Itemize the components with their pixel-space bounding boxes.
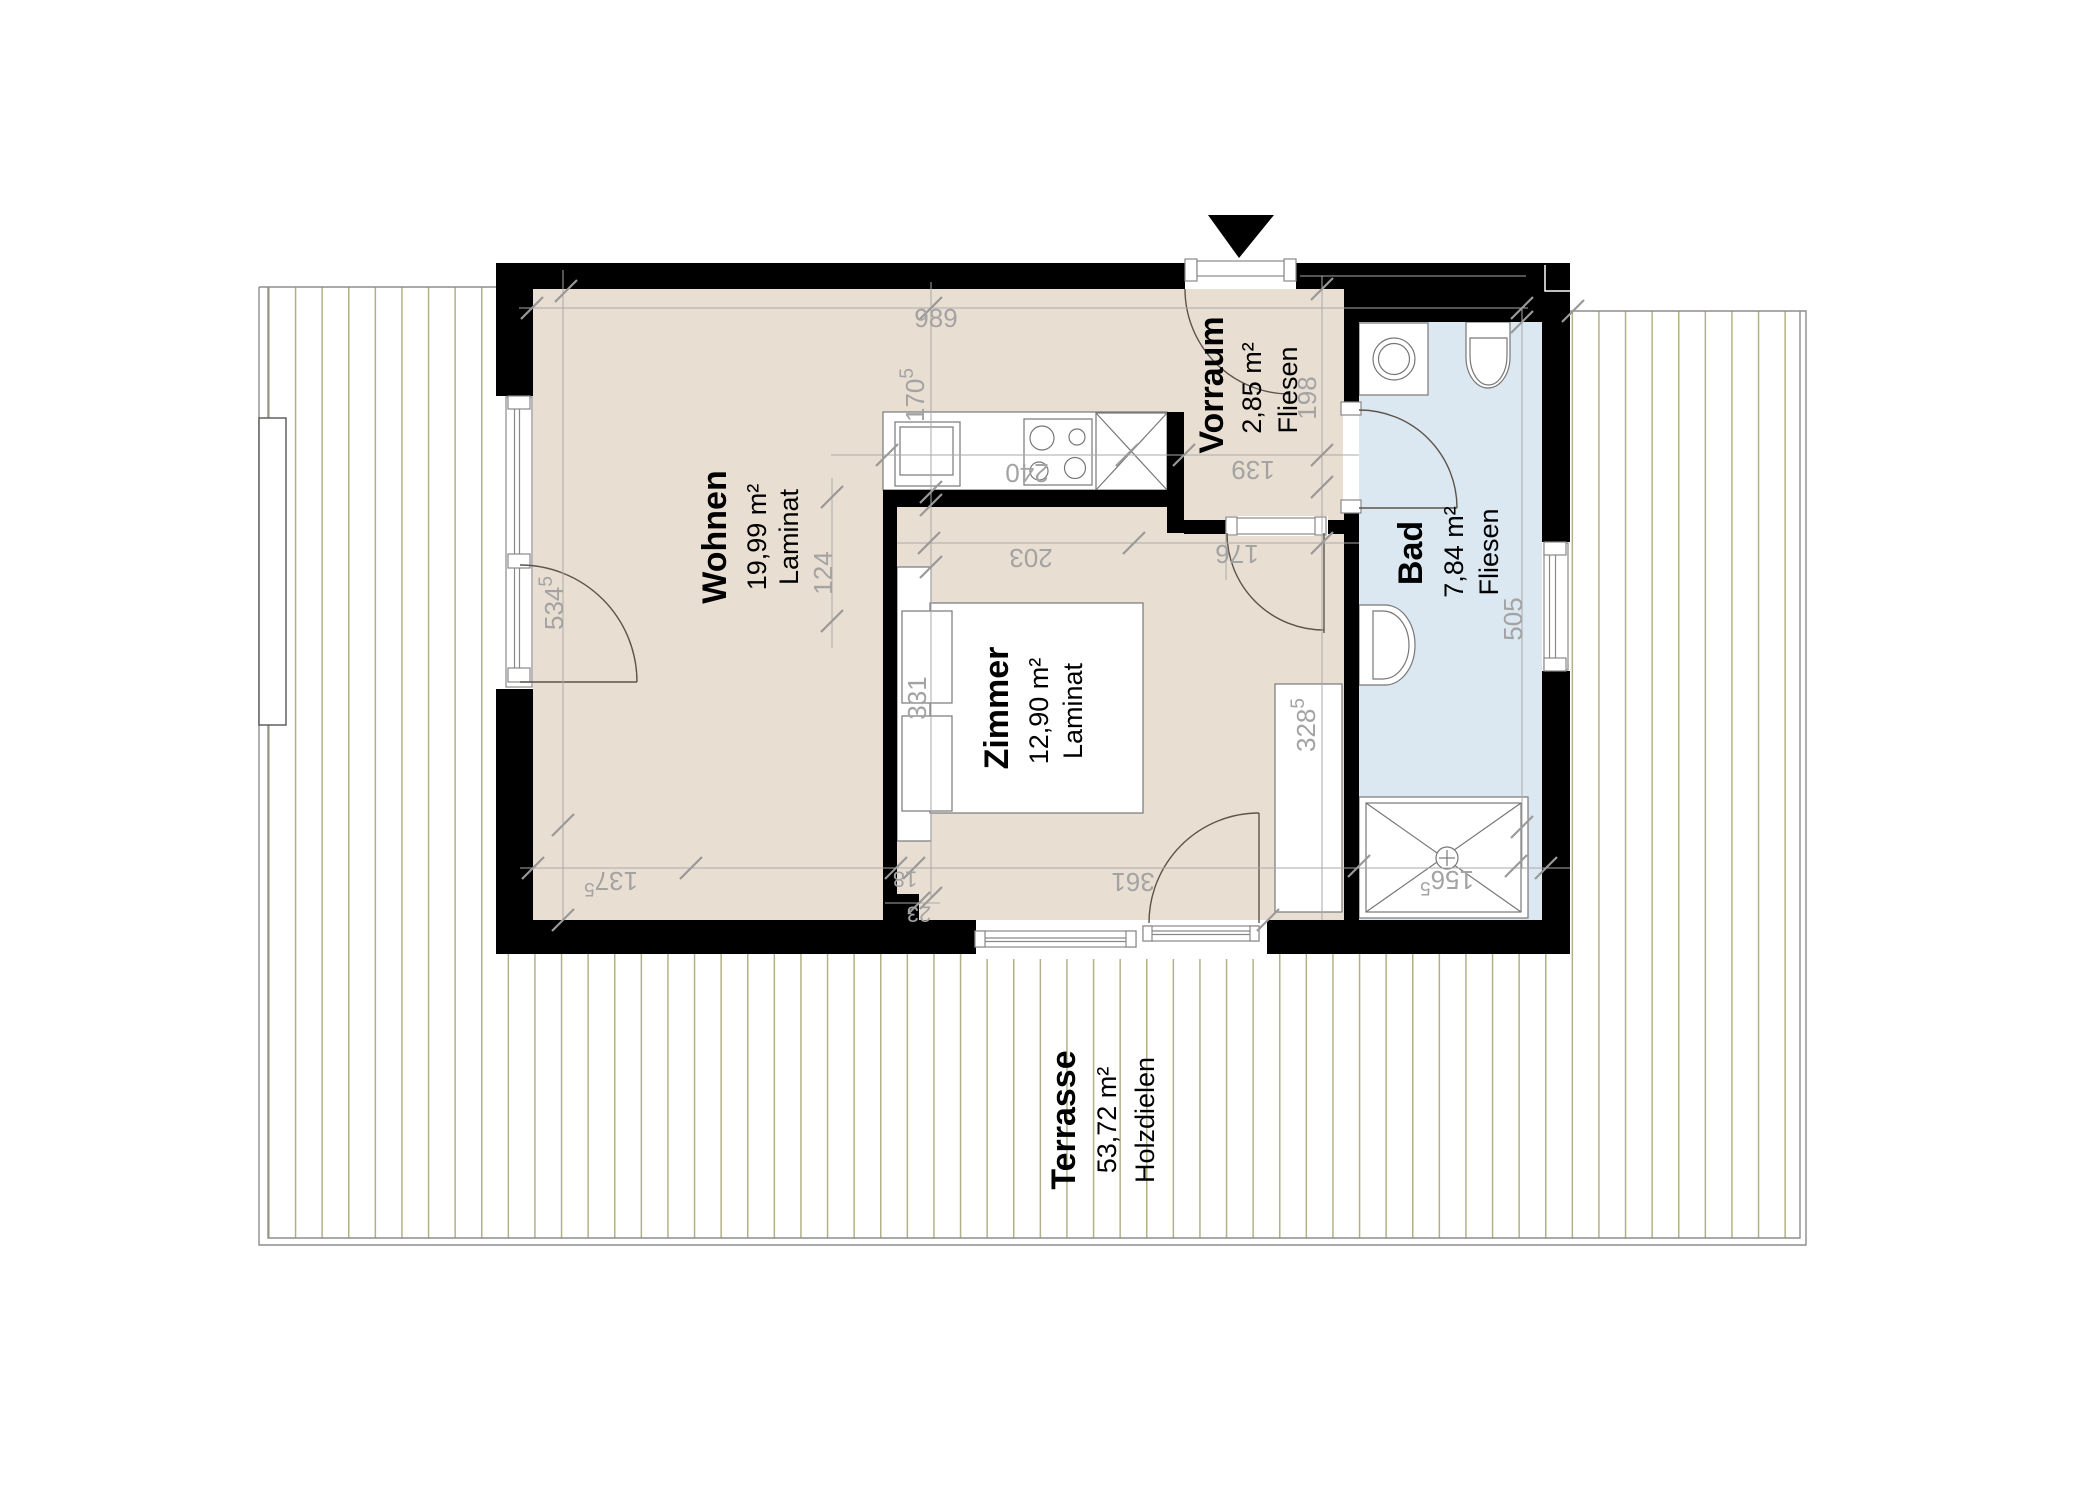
svg-text:12,90 m²: 12,90 m² <box>1024 658 1054 765</box>
svg-text:331: 331 <box>902 676 932 719</box>
svg-text:176: 176 <box>1215 539 1258 569</box>
svg-text:Bad: Bad <box>1392 521 1430 585</box>
svg-text:Fliesen: Fliesen <box>1273 346 1303 433</box>
svg-text:18: 18 <box>893 867 917 892</box>
svg-text:240: 240 <box>1005 458 1048 488</box>
svg-text:989: 989 <box>914 303 957 333</box>
svg-text:Zimmer: Zimmer <box>978 647 1016 770</box>
svg-text:361: 361 <box>1111 867 1154 897</box>
svg-text:Wohnen: Wohnen <box>696 470 734 603</box>
svg-text:Vorraum: Vorraum <box>1193 316 1231 453</box>
svg-text:Terrasse: Terrasse <box>1045 1050 1083 1189</box>
svg-text:19,99 m²: 19,99 m² <box>742 484 772 591</box>
svg-text:Laminat: Laminat <box>1058 662 1088 759</box>
svg-text:7,84 m²: 7,84 m² <box>1439 506 1469 598</box>
svg-text:23: 23 <box>907 902 931 927</box>
svg-text:53,72 m²: 53,72 m² <box>1092 1067 1122 1174</box>
svg-text:Laminat: Laminat <box>774 488 804 585</box>
svg-text:505: 505 <box>1498 597 1528 640</box>
svg-text:124: 124 <box>808 551 838 594</box>
svg-text:Fliesen: Fliesen <box>1474 508 1504 595</box>
svg-text:2,85 m²: 2,85 m² <box>1237 342 1267 434</box>
svg-text:139: 139 <box>1231 455 1274 485</box>
svg-text:Holzdielen: Holzdielen <box>1130 1057 1160 1183</box>
svg-text:203: 203 <box>1009 543 1052 573</box>
